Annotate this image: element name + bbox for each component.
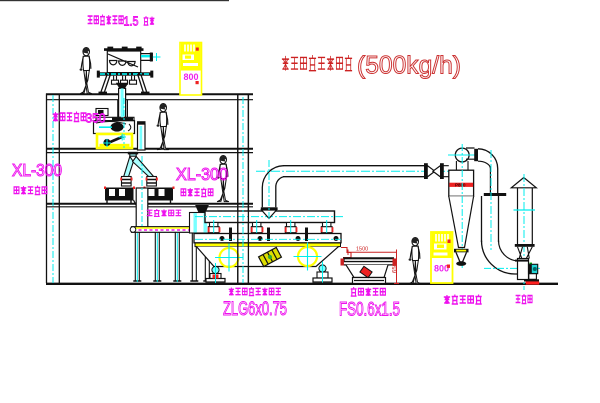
svg-text:800: 800	[184, 72, 199, 82]
svg-text:350: 350	[86, 112, 106, 126]
svg-text:800: 800	[434, 264, 449, 274]
svg-text:ZLG6x0.75: ZLG6x0.75	[223, 299, 287, 320]
svg-text:(500kg/h): (500kg/h)	[357, 52, 461, 80]
svg-text:P800: P800	[455, 183, 466, 188]
svg-text:XL-300: XL-300	[176, 164, 228, 184]
svg-text:1500: 1500	[356, 247, 368, 253]
svg-text:FS0.6x1.5: FS0.6x1.5	[339, 300, 400, 321]
svg-text:XL-300: XL-300	[12, 160, 62, 180]
svg-text:1.5: 1.5	[124, 14, 139, 29]
